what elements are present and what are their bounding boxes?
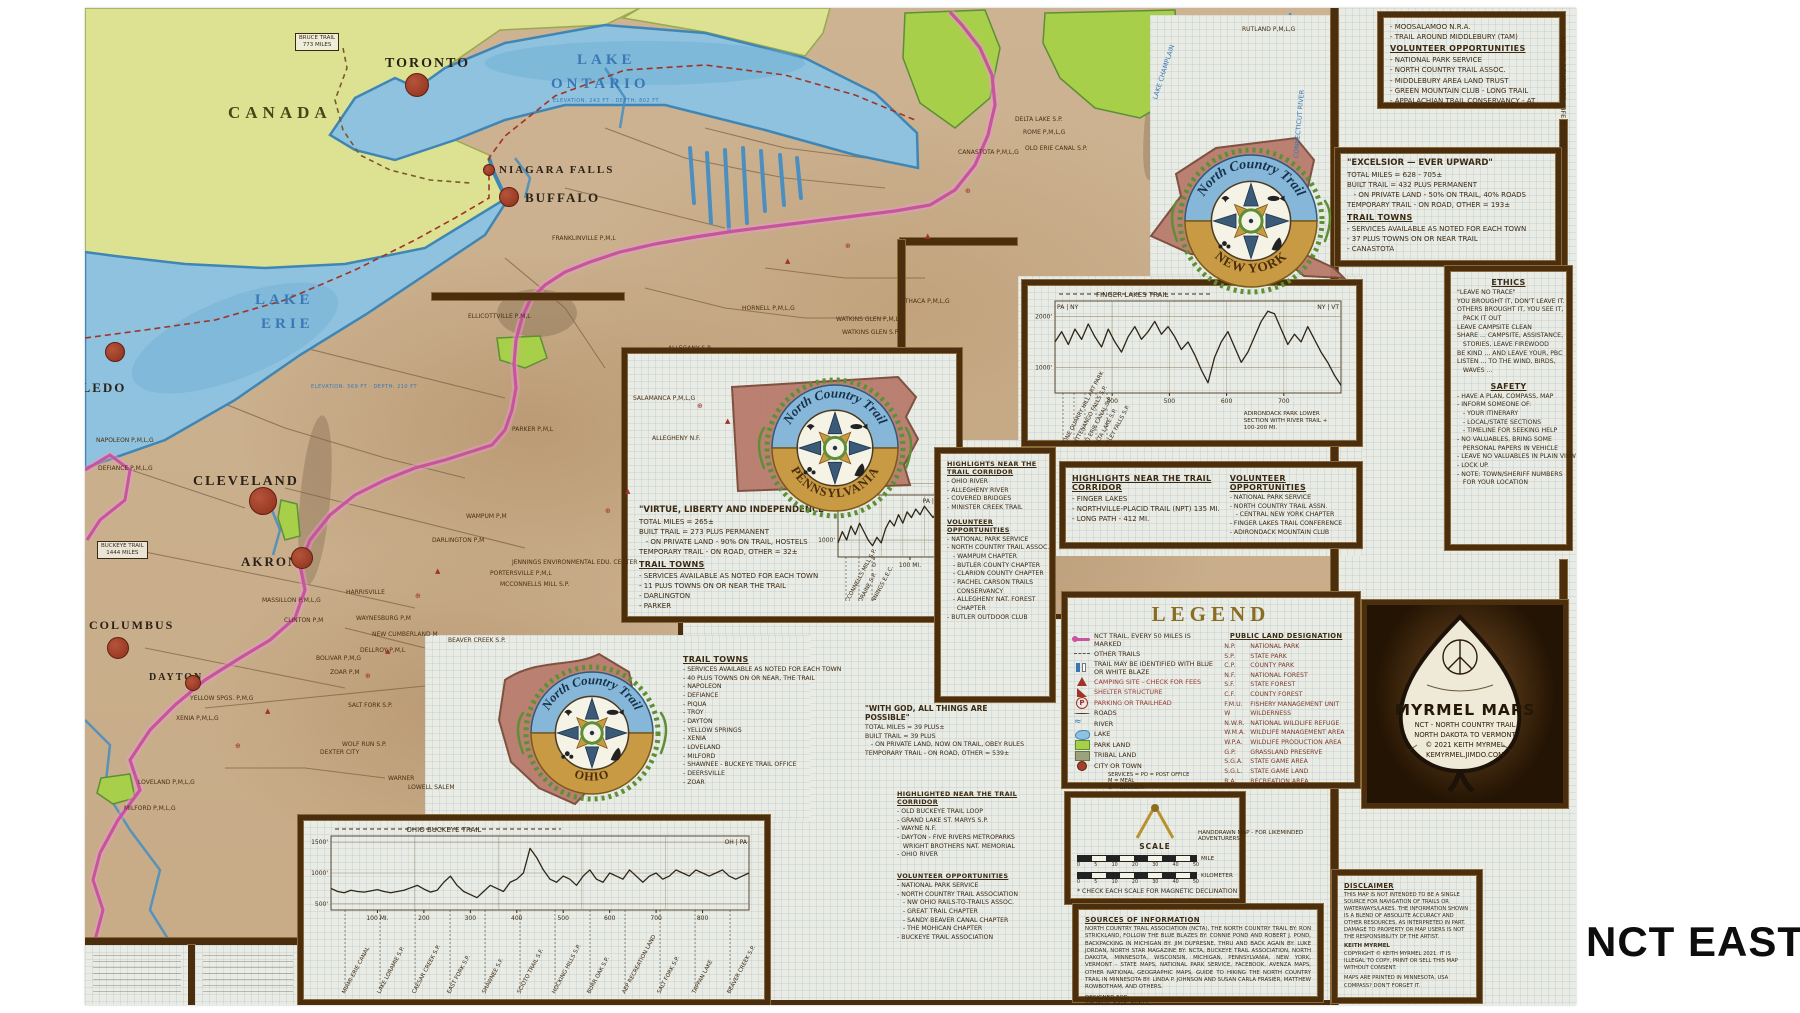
town-label: ZOAR P,M — [330, 670, 360, 676]
trailhead-icon: ⊕ — [235, 743, 241, 750]
town-label: SALAMANCA P,M,L,G — [633, 396, 695, 402]
town-label: WATKINS GLEN S.P. — [842, 330, 899, 336]
town-label: OLD ERIE CANAL S.P. — [1025, 146, 1087, 152]
campsite-icon: ▲ — [785, 258, 790, 265]
town-label: LOWELL SALEM — [408, 785, 455, 791]
town-label: RUTLAND P,M,L,G — [1242, 27, 1295, 33]
town-label: ITHACA P,M,L,G — [903, 299, 950, 305]
boxed-trail-label: BRUCE TRAIL 773 MILES — [295, 33, 339, 51]
town-label: WOLF RUN S.P. — [342, 742, 387, 748]
trailhead-icon: ⊕ — [365, 673, 371, 680]
campsite-icon: ▲ — [725, 418, 730, 425]
lake-erie-label: LAKE — [255, 292, 314, 309]
town-label: WATKINS GLEN P,M,L,G — [836, 317, 906, 323]
city-dot — [499, 187, 519, 207]
city-dot — [405, 73, 429, 97]
trailhead-icon: ⊕ — [605, 508, 611, 515]
town-label: DELTA LAKE S.P. — [1015, 117, 1063, 123]
campsite-icon: ▲ — [265, 708, 270, 715]
city-dot — [483, 164, 495, 176]
trailhead-icon: ⊕ — [697, 403, 703, 410]
lake-ontario-label2: ONTARIO — [551, 76, 650, 93]
town-label: MASSILLON P,M,L,G — [262, 598, 321, 604]
town-label: NAPOLEON P,M,L,G — [96, 438, 154, 444]
town-label: ROME P,M,L,G — [1023, 130, 1065, 136]
map-photo: - MOOSALAMOO N.R.A.- TRAIL AROUND MIDDLE… — [85, 8, 1576, 1005]
lake-ontario-sub: ELEVATION: 243 FT · DEPTH: 802 FT — [553, 98, 659, 104]
lake-erie-label2: ERIE — [261, 316, 314, 333]
city-label-toledo: TOLEDO — [85, 380, 126, 396]
rotated-label: ALWAYS REMEMBER, LIFE IS GOOD — [1559, 36, 1567, 149]
town-label: NEW CUMBERLAND M — [372, 632, 438, 638]
town-label: WARNER — [388, 776, 414, 782]
town-label: CLINTON P,M — [284, 618, 323, 624]
rotated-label: CONNECTICUT RIVER — [1292, 90, 1306, 159]
town-label: DELLROY P,M,L — [360, 648, 405, 654]
campsite-icon: ▲ — [435, 568, 440, 575]
town-label: BOLIVAR P,M,G — [316, 656, 361, 662]
town-label: XENIA P,M,L,G — [176, 716, 219, 722]
town-label: WAMPUM P,M — [466, 514, 507, 520]
town-label: FRANKLINVILLE P,M,L — [552, 236, 616, 242]
rotated-label: LAKE CHAMPLAIN — [1151, 44, 1176, 101]
town-label: PARKER P,M,L — [512, 427, 553, 433]
town-label: DEFIANCE P,M,L,G — [98, 466, 153, 472]
town-label: SALT FORK S.P. — [348, 703, 393, 709]
city-dot — [185, 675, 201, 691]
campsite-icon: ▲ — [925, 233, 930, 240]
trailhead-icon: ⊕ — [845, 243, 851, 250]
lake-erie-sub: ELEVATION: 569 FT · DEPTH: 210 FT — [311, 384, 417, 390]
town-label: ALLEGHENY N.F. — [652, 436, 700, 442]
town-label: DEXTER CITY — [320, 750, 359, 756]
boxed-trail-label: BUCKEYE TRAIL 1444 MILES — [97, 541, 148, 559]
town-label: CANASTOTA P,M,L,G — [958, 150, 1019, 156]
canada-label: CANADA — [228, 103, 332, 123]
trailhead-icon: ⊕ — [965, 188, 971, 195]
town-label: HARRISVILLE — [346, 590, 385, 596]
campsite-icon: ▲ — [385, 648, 390, 655]
city-label-columbus: COLUMBUS — [89, 618, 174, 633]
lake-ontario-label: LAKE — [577, 52, 636, 69]
city-label-toronto: TORONTO — [385, 56, 470, 72]
city-dot — [291, 547, 313, 569]
town-label: BEAVER CREEK S.P. — [448, 638, 506, 644]
town-label: WAYNESBURG P,M — [356, 616, 411, 622]
town-label: HORNELL P,M,L,G — [742, 306, 795, 312]
town-label: JENNINGS ENVIRONMENTAL EDU. CENTER — [512, 560, 637, 566]
town-label: DARLINGTON P,M — [432, 538, 484, 544]
nct-east-badge: NCT EAST — [1586, 918, 1800, 966]
city-label-buffalo: BUFFALO — [525, 190, 600, 206]
city-label-cleveland: CLEVELAND — [193, 474, 299, 490]
town-label: YELLOW SPGS. P,M,G — [190, 696, 253, 702]
trailhead-icon: ⊕ — [415, 593, 421, 600]
campsite-icon: ▲ — [625, 488, 630, 495]
city-dot — [249, 487, 277, 515]
town-label: ELLICOTTVILLE P,M,L — [468, 314, 531, 320]
city-dot — [107, 637, 129, 659]
town-label: LOVELAND P,M,L,G — [138, 780, 195, 786]
town-label: PORTERSVILLE P,M,L — [490, 571, 552, 577]
town-label: ALLEGANY S.P. — [668, 346, 712, 352]
city-label-niagara-falls: NIAGARA FALLS — [499, 164, 614, 176]
town-label: MILFORD P,M,L,G — [124, 806, 176, 812]
map-labels-layer: CANADA LAKE ONTARIO ELEVATION: 243 FT · … — [85, 8, 1576, 1005]
town-label: MCCONNELLS MILL S.P. — [500, 582, 569, 588]
city-dot — [105, 342, 125, 362]
